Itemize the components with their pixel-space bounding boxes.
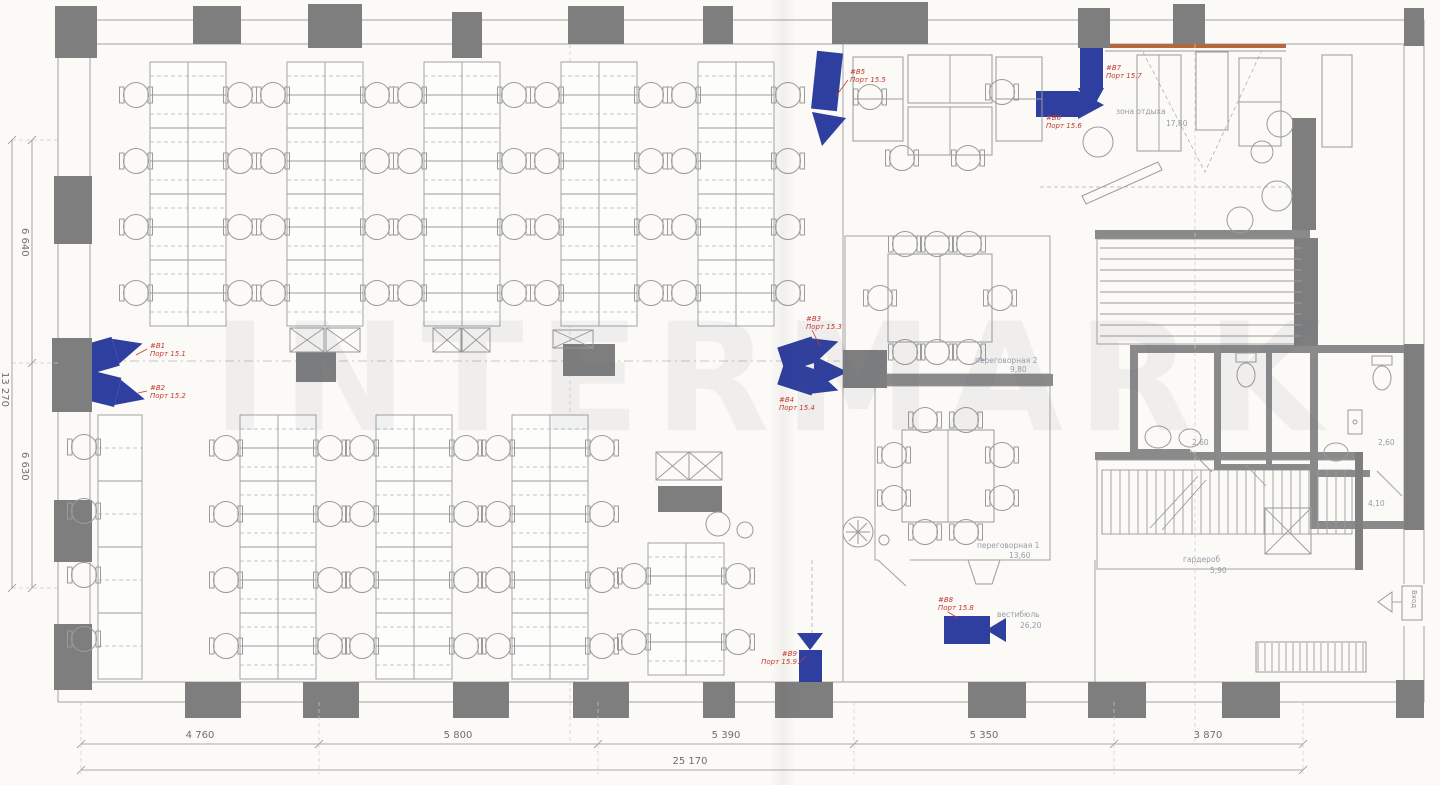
room-label-meeting2: переговорная 2 [975,357,1037,365]
lobby-table [846,520,870,544]
entrance-label: Вход [1410,590,1418,608]
room-label-lobby: вестибюль [997,611,1040,619]
camera-id: #В5 [850,68,886,76]
camera-id: #В6 [1046,114,1082,122]
scan-crease [770,0,796,785]
camera-id: #В3 [806,315,842,323]
camera-label-v1: #В1Порт 15.1 [150,342,186,359]
room-area-rest: 17,80 [1166,120,1187,128]
camera-port: Порт 15.4 [779,404,815,412]
room-area-lobby: 26,20 [1020,622,1041,630]
camera-id: #В2 [150,384,186,392]
plan-drawing [0,0,1440,785]
room-label-meeting1: переговорная 1 [977,542,1039,550]
furniture [8,2,1424,774]
interior-walls [845,230,1424,682]
camera-port: Порт 15.8 [938,604,974,612]
camera-id: #В1 [150,342,186,350]
dimension-label: 5 800 [444,730,473,741]
camera-label-v3: #В3Порт 15.3 [806,315,842,332]
camera-id: #В7 [1106,64,1142,72]
camera-id: #В9 [761,650,797,658]
bench [1256,642,1366,672]
camera-id: #В4 [779,396,815,404]
dimension-total-label: 25 170 [673,756,708,767]
dimension-label: 4 760 [186,730,215,741]
camera-port: Порт 15.1 [150,350,186,358]
dimension-label: 6 630 [19,452,30,481]
camera-port: Порт 15.7 [1106,72,1142,80]
camera-label-v6: #В6Порт 15.6 [1046,114,1082,131]
room-label-rest: зона отдыха [1116,108,1166,116]
dimension-label: 6 640 [19,228,30,257]
room-area-wc-right: 2,60 [1378,439,1395,447]
camera-label-v5: #В5Порт 15.5 [850,68,886,85]
camera-id: #В8 [938,596,974,604]
camera-label-v9: #В9Порт 15.9 [761,650,797,667]
camera-label-v2: #В2Порт 15.2 [150,384,186,401]
camera-port: Порт 15.9 [761,658,797,666]
room-area-meeting1: 13,60 [1009,552,1030,560]
dimension-label: 5 390 [712,730,741,741]
camera-port: Порт 15.3 [806,323,842,331]
camera-icon-v5 [811,51,846,146]
room-label-wardrobe: гардероб [1183,556,1220,564]
camera-icon-v9 [797,633,823,688]
camera-label-v7: #В7Порт 15.7 [1106,64,1142,81]
camera-port: Порт 15.5 [850,76,886,84]
camera-port: Порт 15.2 [150,392,186,400]
dimension-label: 5 350 [970,730,999,741]
camera-icon-v8 [944,616,1006,644]
camera-label-v4: #В4Порт 15.4 [779,396,815,413]
room-area-wardrobe: 5,90 [1210,567,1227,575]
room-area-wc-small: 4,10 [1368,500,1385,508]
dimension-total-label: 13 270 [0,372,10,407]
floor-plan-scan: INTERMARK 4 760 5 800 5 390 5 350 3 870 … [0,0,1440,785]
room-area-wc-left: 2,60 [1192,439,1209,447]
dimension-label: 3 870 [1194,730,1223,741]
room-area-meeting2: 9,80 [1010,366,1027,374]
camera-label-v8: #В8Порт 15.8 [938,596,974,613]
entrance-door [1378,584,1426,626]
camera-port: Порт 15.6 [1046,122,1082,130]
